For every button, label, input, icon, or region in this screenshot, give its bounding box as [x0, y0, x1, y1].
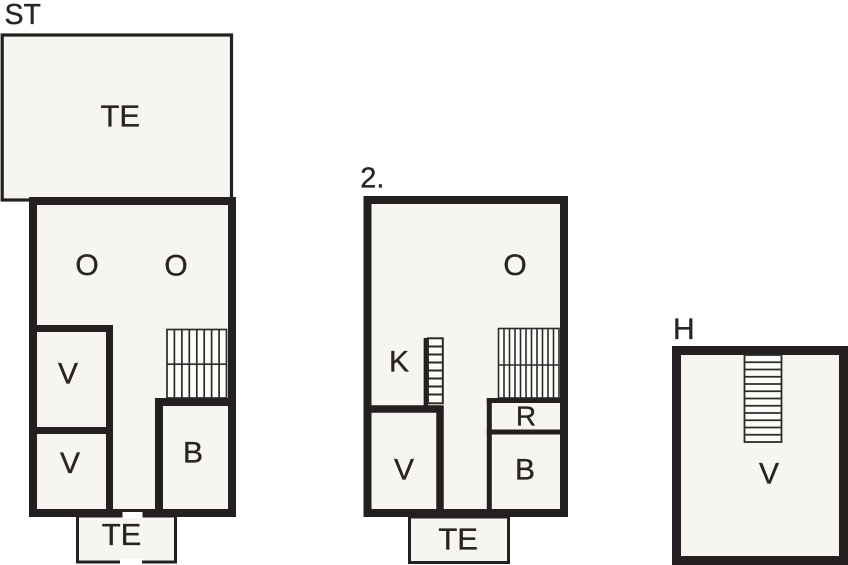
svg-text:O: O: [75, 249, 98, 282]
svg-text:O: O: [503, 249, 526, 282]
svg-text:V: V: [58, 358, 78, 391]
svg-text:TE: TE: [102, 517, 142, 552]
svg-text:B: B: [515, 454, 535, 487]
svg-text:V: V: [60, 447, 80, 480]
svg-text:TE: TE: [100, 99, 140, 134]
svg-text:TE: TE: [438, 521, 478, 556]
svg-text:ST: ST: [5, 0, 41, 31]
svg-text:K: K: [389, 346, 409, 379]
svg-text:B: B: [183, 437, 203, 470]
svg-text:H: H: [673, 313, 695, 346]
svg-text:R: R: [516, 401, 536, 432]
svg-text:V: V: [759, 458, 779, 491]
svg-text:O: O: [164, 250, 187, 283]
svg-text:V: V: [394, 454, 414, 487]
svg-text:2.: 2.: [360, 162, 384, 194]
